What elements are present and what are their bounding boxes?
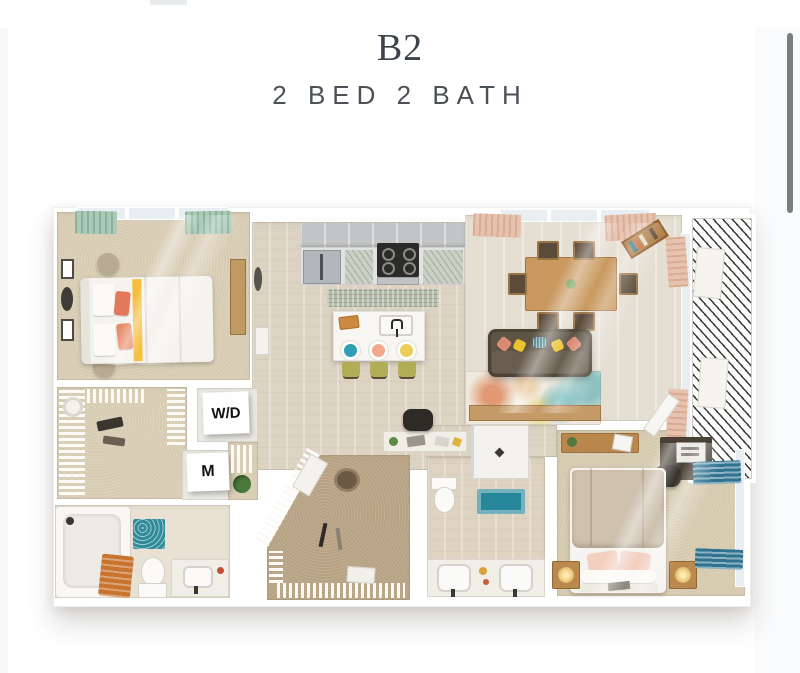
balcony-lounge-chair	[693, 247, 725, 299]
desk-plant	[389, 437, 398, 446]
closet-ottoman	[337, 471, 357, 489]
peach-plate	[372, 344, 385, 357]
burner	[382, 262, 395, 275]
floorplan-page: B2 2 BED 2 BATH	[0, 0, 800, 673]
dining-chair	[537, 241, 559, 260]
page-title: B2	[0, 26, 800, 70]
sofa	[488, 329, 592, 377]
scrollbar-track[interactable]	[755, 28, 800, 673]
bed-1	[80, 276, 213, 364]
oven-front	[377, 277, 419, 285]
desk-papers	[406, 435, 425, 447]
toilet-bowl	[141, 557, 165, 586]
washer-dryer-label: W/D	[211, 404, 241, 422]
duvet-fold	[178, 276, 182, 362]
refrigerator	[303, 250, 341, 284]
burner	[382, 248, 395, 261]
washer-dryer-unit: W/D	[202, 391, 249, 435]
desk-papers	[434, 436, 449, 447]
vanity-item	[217, 567, 224, 574]
coral-accent-pillow	[114, 291, 131, 316]
bar-stool	[342, 362, 360, 377]
bedroom-2-console	[561, 433, 639, 453]
table-lamp	[675, 567, 691, 583]
fridge-handle	[320, 254, 323, 280]
window-mullion	[175, 207, 179, 220]
console-plant	[567, 437, 577, 447]
shoe-bench	[346, 566, 375, 584]
vanity-sink	[437, 564, 471, 592]
bed-pillow	[92, 284, 115, 316]
bathroom-2-double-vanity	[427, 559, 545, 597]
duvet-fold	[590, 468, 592, 546]
pink-throw-pillow	[496, 336, 513, 353]
desk-nook-counter	[383, 431, 467, 452]
faucet	[194, 586, 198, 594]
bar-stool	[398, 362, 416, 377]
vanity-sink	[183, 566, 213, 588]
mechanical-label: M	[201, 463, 215, 481]
shower-fixture	[66, 517, 74, 525]
desk-item	[452, 437, 462, 447]
faucet	[451, 589, 455, 597]
toilet-tank	[138, 583, 167, 598]
window-mullion	[125, 207, 129, 220]
teal-plate	[344, 344, 357, 357]
duvet-fold	[642, 468, 644, 546]
blue-curtain	[695, 548, 744, 570]
page-gutter-left	[0, 28, 8, 673]
orange-striped-towel	[98, 553, 134, 598]
teal-wall-art	[133, 519, 165, 549]
printer-detail	[681, 453, 699, 456]
faucet	[513, 589, 517, 597]
burner	[403, 262, 416, 275]
round-side-table	[97, 253, 119, 275]
wall-art-frame	[61, 319, 74, 341]
cutting-board	[338, 315, 359, 330]
window-mullion	[547, 209, 551, 222]
printer	[676, 442, 706, 463]
dining-table	[525, 257, 617, 311]
dining-chair	[573, 241, 595, 260]
marble-backsplash	[345, 250, 373, 284]
vanity-flowers	[479, 567, 487, 575]
wall-art-frame	[61, 259, 74, 279]
bedroom-1-dresser	[230, 259, 246, 335]
table-lamp	[558, 567, 574, 583]
sofa-seat	[492, 351, 588, 373]
vanity-sink	[499, 564, 533, 592]
kitchen-runner-rug	[327, 289, 439, 307]
faucet-stem	[396, 329, 398, 337]
closet-wire-shelving	[277, 583, 405, 598]
bed-2	[570, 468, 666, 593]
yellow-throw	[132, 279, 142, 361]
blue-curtain	[693, 460, 742, 485]
linen-shelves	[231, 445, 255, 473]
yellow-plate	[400, 344, 413, 357]
mechanical-unit: M	[186, 452, 229, 491]
page-subtitle: 2 BED 2 BATH	[0, 80, 800, 111]
pink-throw-pillow	[566, 336, 583, 353]
potted-plant	[233, 475, 251, 493]
shower-drain	[495, 448, 505, 458]
table-plant	[566, 279, 576, 289]
bar-stool	[370, 362, 388, 377]
dining-chair	[508, 273, 527, 295]
closet-wire-shelving	[167, 389, 185, 445]
pink-curtain	[473, 213, 522, 238]
duvet-fold	[144, 277, 148, 363]
nightstand	[552, 561, 580, 589]
window-mullion	[597, 209, 601, 222]
office-chair	[403, 409, 433, 431]
floor-plan: W/D M	[45, 193, 755, 623]
bed-pillow	[93, 324, 116, 356]
vanity-item	[483, 579, 489, 585]
media-console	[469, 405, 601, 421]
balcony-lounge-chair	[697, 357, 728, 409]
shower-glass	[471, 425, 474, 479]
closet-wire-shelving	[269, 551, 283, 583]
headboard	[80, 278, 90, 364]
bathroom-1-vanity	[171, 559, 229, 597]
coral-accent-pillow	[116, 323, 134, 350]
printer-detail	[681, 447, 699, 450]
beige-duvet	[572, 470, 664, 548]
entry-console	[255, 327, 269, 355]
round-mirror	[61, 287, 73, 311]
marble-backsplash	[423, 250, 463, 284]
dining-chair	[619, 273, 638, 295]
walk-in-shower	[471, 425, 529, 479]
cropped-ui-fragment	[150, 0, 187, 5]
teal-bath-mat	[477, 489, 525, 514]
book	[649, 228, 659, 240]
nightstand	[669, 561, 697, 589]
entry-oval-mirror	[254, 267, 262, 291]
teal-curtain	[75, 211, 117, 235]
toilet-bowl	[434, 487, 455, 513]
burner	[403, 248, 416, 261]
pink-curtain	[665, 236, 688, 287]
closet-wire-shelving	[87, 389, 145, 403]
faucet	[391, 319, 403, 329]
teal-curtain	[185, 211, 231, 235]
gas-range	[377, 243, 419, 277]
round-basket	[63, 397, 83, 417]
patterned-pillow	[533, 337, 546, 348]
laptop	[612, 433, 633, 452]
